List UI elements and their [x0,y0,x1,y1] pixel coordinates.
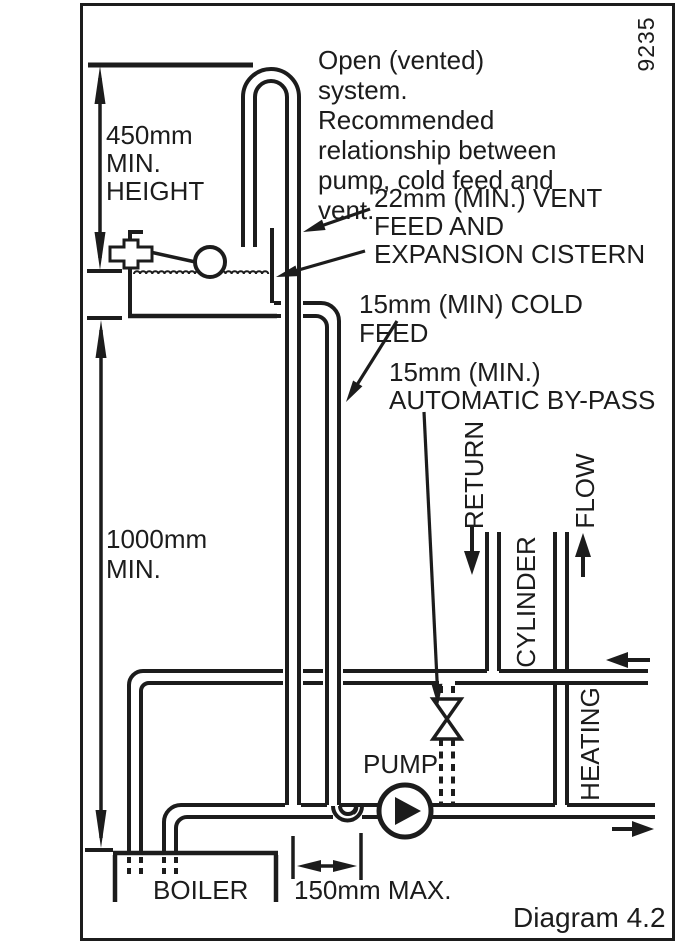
dim-450-label: 450mm MIN. HEIGHT [106,121,204,205]
dim-1000-label: 1000mm MIN. [106,524,207,584]
boiler-connections [129,857,176,877]
heating-label: HEATING [577,679,603,809]
dim-150 [293,833,361,880]
pump-icon [379,785,431,837]
vent-pipe [243,69,299,805]
diagram-caption: Diagram 4.2 [513,903,666,932]
bypass-valve-icon [433,699,461,739]
cylinder-return-pipe [487,532,499,671]
cold-feed-pipe [274,303,339,805]
drawing-number: 9235 [633,9,659,79]
diagram-page: Open (vented) system. Recommended relati… [0,0,687,949]
boiler-label: BOILER [153,876,248,905]
float-arm [150,252,200,263]
return-label: RETURN [461,410,487,540]
flow-label: FLOW [572,446,598,536]
crossover-loop [333,806,362,821]
cylinder-label: CYLINDER [513,527,539,677]
cold-feed-label: 15mm (MIN) COLD FEED [359,290,659,348]
inlet-valve-icon [110,240,152,268]
bypass-label: 15mm (MIN.) AUTOMATIC BY-PASS [389,358,659,414]
dim-150-label: 150mm MAX. [294,876,452,905]
vent-label: 22mm (MIN.) VENT FEED AND EXPANSION CIST… [374,184,654,268]
cylinder-flow-pipe [555,532,567,805]
float-ball [195,247,225,277]
pump-label: PUMP [363,750,438,779]
dim-1000 [85,318,122,850]
